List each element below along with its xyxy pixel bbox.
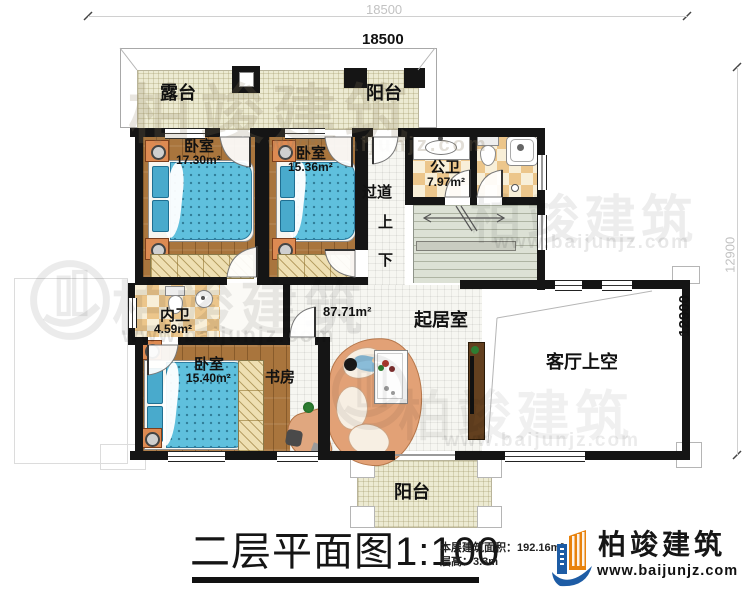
eave-corner [418, 48, 435, 70]
room-area-bedroom2: 15.36m² [288, 161, 333, 174]
brand-logo-icon [550, 526, 594, 596]
room-label-corridor: 过道 [362, 185, 392, 201]
door-arc [227, 247, 257, 277]
door-arc [477, 170, 502, 197]
dim-height-inner: 12900 [677, 295, 693, 337]
door-arc [373, 137, 398, 164]
brand-url: www.baijunjz.com [597, 564, 738, 579]
dim-height-outer: 12900 [723, 237, 737, 273]
door-arc [220, 137, 250, 167]
room-area-bedroom3: 15.40m² [186, 372, 231, 385]
brand-name: 柏竣建筑 [598, 530, 726, 559]
room-area-inner-bath: 4.59m² [154, 323, 192, 336]
floor-area-label: 本层建筑面积： [440, 542, 517, 554]
title-underline [192, 577, 479, 583]
eave-corner [120, 48, 137, 70]
floor-height-value: 3.3m [473, 556, 498, 568]
logo-window-slit [572, 536, 575, 566]
room-area-public-bath: 7.97m² [427, 176, 465, 189]
stairs-up-label: 上 [378, 215, 393, 231]
floor-height-label: 层高： [440, 556, 473, 568]
logo-tower-window [560, 563, 564, 565]
room-label-terrace: 露台 [160, 84, 196, 103]
room-label-void: 客厅上空 [546, 353, 618, 372]
floor-plan-canvas: 18500 12900 18500 12900 [0, 0, 750, 596]
room-area-living: 87.71m² [323, 305, 371, 319]
room-label-study: 书房 [265, 370, 295, 386]
door-arc [290, 307, 315, 337]
room-area-bedroom1: 17.30m² [176, 154, 221, 167]
void-outline [488, 318, 497, 443]
logo-tower-window [560, 548, 564, 550]
floor-height-line: 层高：3.3m [440, 557, 498, 569]
dim-width-inner: 18500 [362, 32, 404, 48]
logo-window-slit [577, 534, 580, 566]
room-label-balcony-bottom: 阳台 [394, 483, 430, 502]
door-arc [325, 250, 355, 277]
room-label-public-bath: 公卫 [430, 160, 460, 176]
stairs-down-label: 下 [378, 253, 393, 269]
dim-width-outer: 18500 [366, 3, 402, 17]
room-label-living: 起居室 [414, 311, 468, 330]
floor-area-line: 本层建筑面积：192.16m² [440, 543, 564, 555]
logo-tower-window [560, 558, 564, 560]
logo-tower-window [560, 553, 564, 555]
door-arc [148, 345, 178, 375]
void-outline [497, 291, 652, 318]
logo-window-slit [582, 532, 585, 566]
room-label-balcony-top: 阳台 [366, 84, 402, 103]
